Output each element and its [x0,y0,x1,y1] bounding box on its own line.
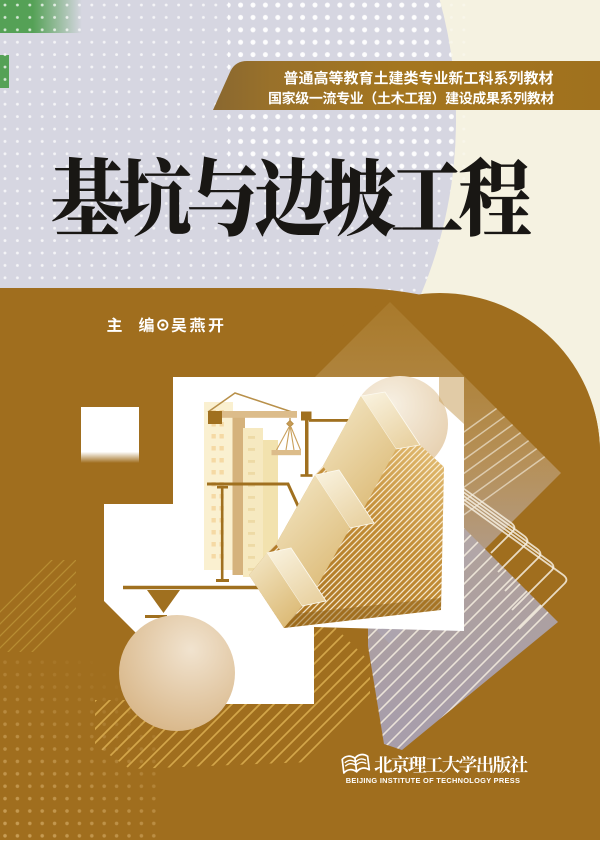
svg-text:BEIJING INSTITUTE OF TECHNO: BEIJING INSTITUTE OF TECHNOLOGY PRESS [346,776,520,785]
